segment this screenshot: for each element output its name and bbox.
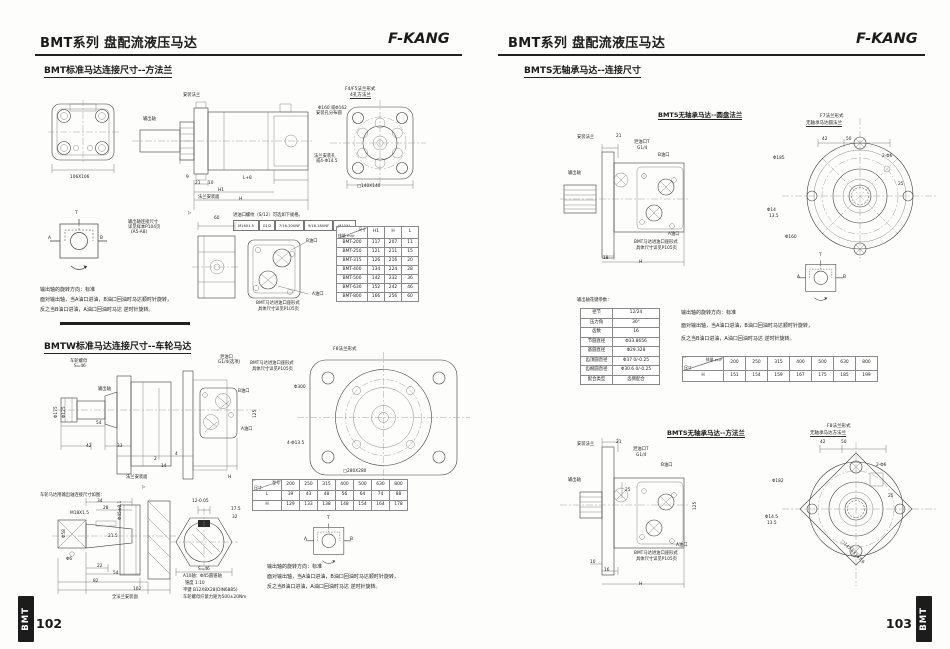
pin-holes-label: 2-Φ6 xyxy=(876,464,886,469)
label-output-shaft: 输出轴 xyxy=(568,479,581,484)
header-rule-right xyxy=(498,54,925,56)
dim-label: 17.5 xyxy=(231,508,241,513)
dim-label: 50 xyxy=(841,441,846,446)
flange-caption: F8法兰形式 xyxy=(827,423,850,429)
port-letter-b: B xyxy=(100,237,103,242)
label-output-shaft: 输出轴 xyxy=(568,172,581,177)
port-letter-t: T xyxy=(819,254,822,259)
dim-label: 10 xyxy=(590,561,595,566)
dimension-table-bmt: 尺寸排量 ml/rH1HLBMT-20011720711BMT-25012121… xyxy=(336,226,419,302)
hydraulic-symbol xyxy=(788,258,844,304)
rotation-note: 输出轴的旋转方向：标准 xyxy=(40,288,95,294)
pin-holes-label: 2-Φ6 xyxy=(882,155,892,160)
label-mount-flange: 安装法兰 xyxy=(577,443,594,448)
side-tab-label: BMT xyxy=(21,607,31,631)
hydraulic-symbol xyxy=(296,521,352,567)
rotation-note: 反之当B油口进油，A油口回油时马达 逆时针旋转。 xyxy=(40,308,153,314)
dim-label: 21 xyxy=(195,182,200,187)
label-flange-face: 法兰安装面 xyxy=(126,476,147,481)
section-marker: ▷ xyxy=(142,486,145,491)
hydraulic-symbol xyxy=(38,216,108,274)
dim-label: L+8 xyxy=(243,177,252,182)
dim-label: 18 xyxy=(603,257,608,262)
dim-label: Φ125 xyxy=(63,406,68,418)
dim-label: 50 xyxy=(846,138,851,143)
page-title-left: BMT系列 盘配流液压马达 xyxy=(40,32,197,51)
wheel-nut-label: S=46 xyxy=(74,365,86,370)
dim-label: 22 xyxy=(97,565,102,570)
f45-flange-view xyxy=(330,100,426,192)
dim-label: 125 xyxy=(694,502,699,510)
dim-label: 28 xyxy=(103,507,108,512)
dim-label: S=46 xyxy=(198,568,210,573)
dim-label: 54 xyxy=(113,572,118,577)
dim-label: 60 xyxy=(214,217,219,222)
dim-label: 25 xyxy=(625,489,630,494)
dim-label: 42 xyxy=(820,441,825,446)
dim-square: □280X280 xyxy=(343,470,366,475)
port-letter-t: T xyxy=(327,517,330,522)
rotation-note: 输出轴的旋转方向：标准 xyxy=(267,565,322,571)
dim-label: 16 xyxy=(604,569,609,574)
shaft-note: (A5-A8) xyxy=(131,231,147,236)
dim-label: H xyxy=(239,198,242,203)
holes-label: 或4-Φ14.5 xyxy=(316,160,338,165)
rotation-note: 反之当B油口进油，A油口回油时马达 逆时针旋转。 xyxy=(681,337,794,343)
wheel-flange-view xyxy=(295,352,470,480)
shaft-spec-note: A10轴：Φ45圆锥轴 xyxy=(183,575,222,580)
spline-params-title: 输出轴花键参数： xyxy=(577,299,611,304)
dim-label: Φ58 xyxy=(63,529,68,538)
rotation-note: 面对输出轴，当A油口进油，B油口回油时马达顺时针旋转， xyxy=(40,298,172,304)
label-output-shaft: 输出轴 xyxy=(98,388,111,393)
side-tab-label: BMT xyxy=(919,607,929,631)
bcd-label: 安装孔分布圆 xyxy=(316,112,342,117)
dim-label: Φ6 xyxy=(66,558,72,563)
section-title-bmtw: BMTW标准马达连接尺寸--车轮马达 xyxy=(44,339,191,354)
port-letter-a: A xyxy=(304,538,307,543)
label-mount-flange: 安装法兰 xyxy=(183,94,200,99)
holes-label: 4-Φ13.5 xyxy=(287,442,304,447)
drain-port-label: G1/4 xyxy=(637,147,647,152)
dim-label: M18X1.5 xyxy=(70,512,89,517)
port-caption: 具体尺寸详见P105页 xyxy=(636,558,677,563)
header-rule-left xyxy=(35,54,462,56)
section-title-bmt-standard: BMT标准马达连接尺寸--方法兰 xyxy=(44,63,172,78)
label-flange-face: 法兰安装面 xyxy=(198,196,219,201)
dim-label: H xyxy=(639,583,642,588)
spline-params-table: 径节12/24压力角30°齿数16节圆直径Φ33.8656基圆直径Φ29.328… xyxy=(580,308,660,385)
page-title-right: BMT系列 盘配流液压马达 xyxy=(508,32,665,51)
dim-label: 25 xyxy=(898,183,903,188)
port-caption: 具体尺寸详见P105页 xyxy=(258,308,299,313)
port-letter-b: B xyxy=(350,538,353,543)
dim-label: 34 xyxy=(97,500,102,505)
port-end-view xyxy=(190,212,315,312)
bmts-side-view-bottom xyxy=(560,438,690,590)
label-flange-face: 全法兰安装面 xyxy=(112,596,138,601)
dim-label: 82 xyxy=(93,580,98,585)
side-tab-left: BMT xyxy=(18,596,34,642)
dim-label: 42 xyxy=(86,445,91,450)
bcd-label: Φ185 xyxy=(773,157,785,162)
page-number-left: 102 xyxy=(36,616,62,631)
holes-label: 13.5 xyxy=(769,215,779,220)
bcd-label: Φ160 xyxy=(785,236,797,241)
drain-port-label: G1/4(选项) xyxy=(218,361,240,366)
label-output-shaft: 输出轴 xyxy=(143,118,156,123)
port-a-label: A油口 xyxy=(241,428,253,433)
dim-label: 9 xyxy=(186,176,189,181)
dim-label: Φ175 xyxy=(55,406,60,418)
dimension-table-bmtw: 型号尺寸200250315400500630800L39434856647488… xyxy=(252,479,408,511)
page-number-right: 103 xyxy=(884,616,912,631)
label-mount-flange: 安装法兰 xyxy=(577,136,594,141)
port-letter-a: A xyxy=(797,276,800,281)
side-tab-right: BMT xyxy=(916,596,932,642)
port-b-label: B油口 xyxy=(238,390,250,395)
port-b-label: B油口 xyxy=(658,154,670,159)
port-a-label: A油口 xyxy=(668,233,680,238)
flange-front-view xyxy=(48,100,120,180)
square-flange-diamond-view xyxy=(782,440,942,590)
dim-label: Φ45±0.1 xyxy=(119,501,124,520)
dimension-table-bmts: 排量 cc/r尺寸200250315400500630800H151154159… xyxy=(682,356,878,382)
dim-label: 54 xyxy=(96,422,101,427)
rotation-note: 输出轴的旋转方向：标准 xyxy=(681,311,736,317)
dim-flange-square: 106X106 xyxy=(70,176,89,181)
rotation-note: 反之当B油口进油，A油口回油时马达 逆时针旋转。 xyxy=(267,585,380,591)
dim-label: 12-0.05 xyxy=(192,500,209,505)
dim-label: 33 xyxy=(117,445,122,450)
dim-label: 32 xyxy=(232,516,237,521)
rotation-note: 面对输出轴，当A油口进油，B油口回油时马达顺时针旋转， xyxy=(267,575,399,581)
section-divider xyxy=(60,322,190,325)
dim-label: 4 xyxy=(175,453,178,458)
wheel-motor-side-view xyxy=(55,368,260,483)
port-caption: 具体尺寸详见P105页 xyxy=(252,368,293,373)
section-title-bmts: BMTS无轴承马达--连接尺寸 xyxy=(524,63,641,78)
round-flange-view xyxy=(780,112,945,262)
brand-logo-right: F-KANG xyxy=(856,31,918,47)
port-b-label: B油口 xyxy=(306,240,318,245)
dim-label: 10 xyxy=(208,182,213,187)
port-letter-t: T xyxy=(75,212,78,217)
flange-caption: 无轴承马达方法兰 xyxy=(810,430,846,437)
shaft-spec-note: 车轮螺母拧紧力矩为500±20Nm xyxy=(183,596,246,601)
dim-label: 21.5 xyxy=(108,535,118,540)
flange-caption: 4孔方法兰 xyxy=(350,92,371,99)
dim-label: 21 xyxy=(616,135,621,140)
subsection-title-round-flange: BMTS无轴承马达--圆盘法兰 xyxy=(658,109,742,120)
dim-label: H xyxy=(228,476,231,481)
rotation-note: 面对输出轴，当A油口进油，B油口回油时马达顺时针旋转， xyxy=(681,324,813,330)
port-a-label: A油口 xyxy=(312,293,324,298)
dim-label: 102 xyxy=(133,588,141,593)
bcd-label: Φ182 xyxy=(772,480,784,485)
dim-label: 25 xyxy=(888,495,893,500)
drain-port-label: G1/4 xyxy=(636,454,646,459)
catalog-spread: BMT系列 盘配流液压马达 F-KANG BMT系列 盘配流液压马达 F-KAN… xyxy=(0,0,950,649)
port-letter-a: A xyxy=(48,237,51,242)
holes-label: 13.5 xyxy=(767,522,777,527)
dim-square: □140X140 xyxy=(357,185,380,190)
brand-logo-left: F-KANG xyxy=(388,31,450,47)
dim-label: 125 xyxy=(254,410,259,418)
bcd-label: Φ300 xyxy=(294,386,306,391)
dim-label: 21 xyxy=(616,441,621,446)
dim-label: 14 xyxy=(161,465,166,470)
port-letter-b: B xyxy=(843,276,846,281)
subsection-title-square-flange: BMTS无轴承马达--方法兰 xyxy=(667,427,745,438)
port-a-label: A油口 xyxy=(676,544,688,549)
dim-label: H1 xyxy=(218,189,224,194)
dim-label: 42 xyxy=(822,138,827,143)
dim-label: H xyxy=(639,261,642,266)
shaft-spec-note: 锥度 1:10 xyxy=(185,582,205,587)
port-b-label: B油口 xyxy=(661,464,673,469)
dim-label: 2 xyxy=(154,458,157,463)
port-caption: 具体尺寸详见P105页 xyxy=(636,247,677,252)
shaft-spec-note: 平键 B12X8X28(DIN6885) xyxy=(183,589,238,594)
